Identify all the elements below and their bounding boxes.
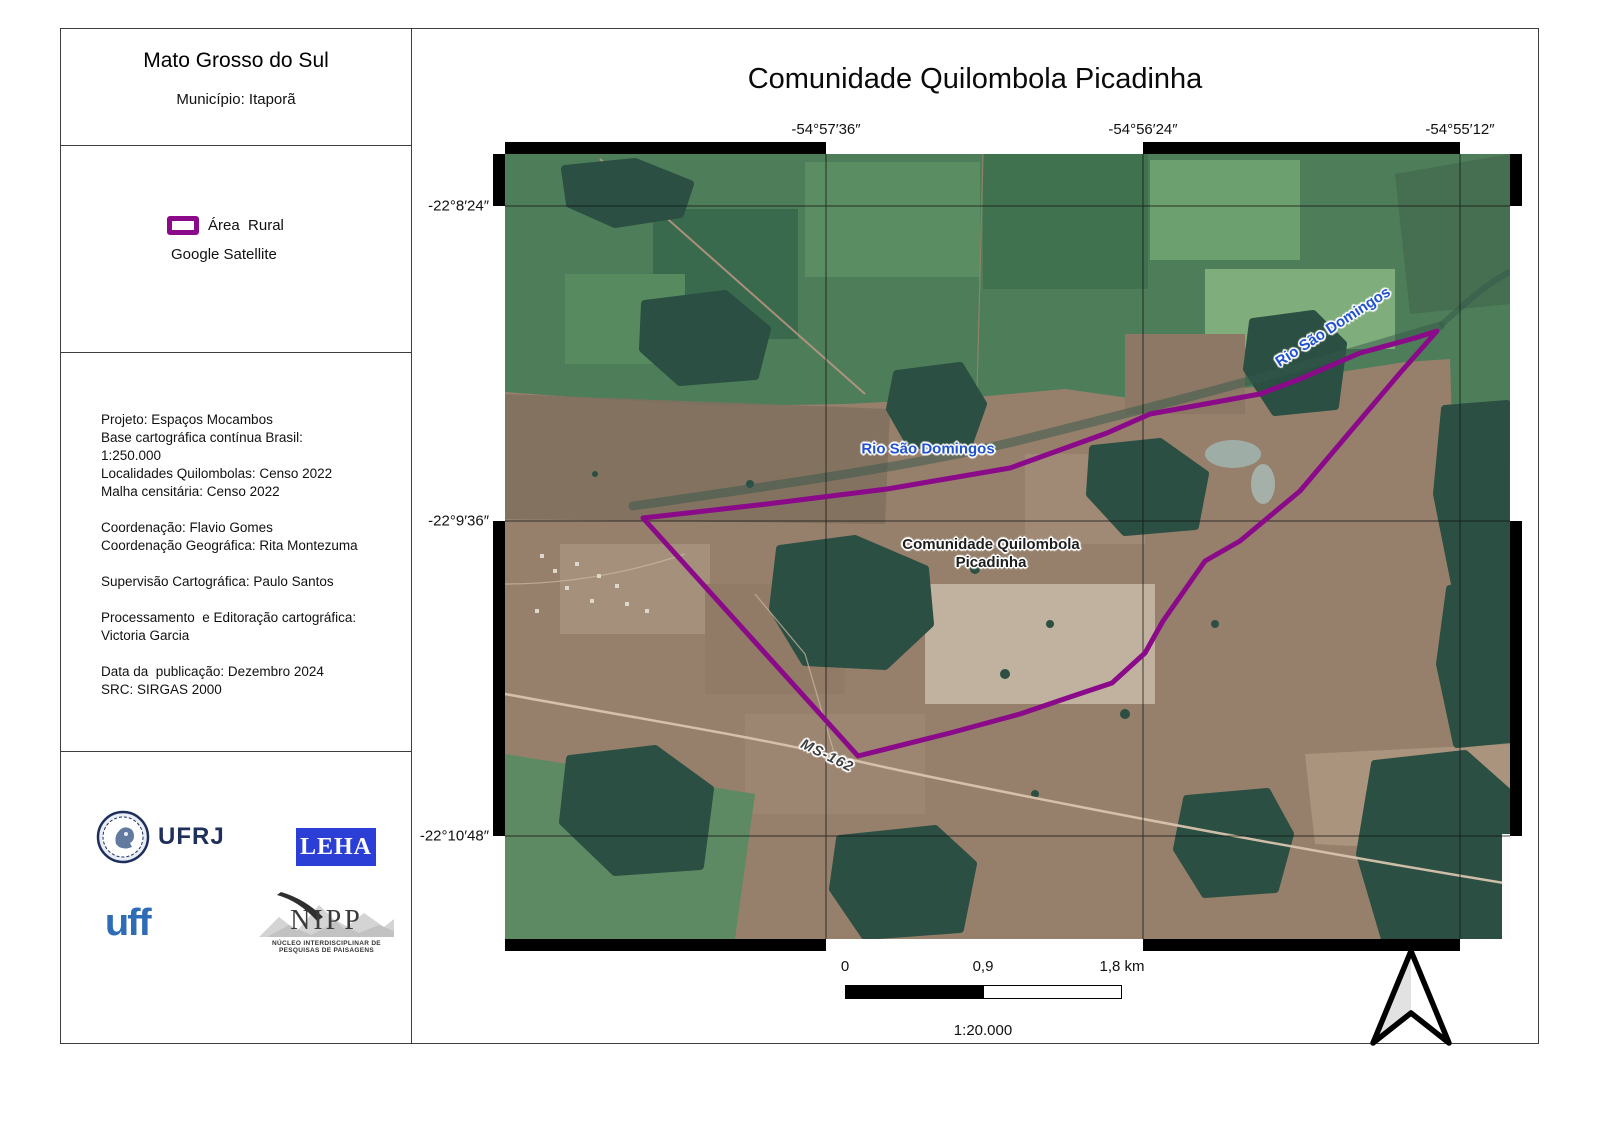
map-panel: Comunidade Quilombola Picadinha -54°57′3… [411, 28, 1539, 1044]
lat-grid-label: -22°9′36″ [428, 513, 489, 530]
nipp-logo-text: NIPP [259, 905, 394, 937]
sidebar: Mato Grosso do Sul Município: Itaporã Ár… [60, 28, 412, 1044]
scalebar-tick-0: 0 [841, 958, 849, 975]
credit-line [101, 591, 391, 609]
scalebar-tick-end: 1,8 km [1099, 958, 1144, 975]
map-layout-page: Mato Grosso do Sul Município: Itaporã Ár… [0, 0, 1600, 1131]
credit-line: Coordenação Geográfica: Rita Montezuma [101, 537, 391, 555]
ufrj-emblem-icon [96, 810, 150, 864]
municipality-label: Município: Itaporã [61, 91, 411, 108]
credit-line: Supervisão Cartográfica: Paulo Santos [101, 573, 391, 591]
scalebar-tick-mid: 0,9 [973, 958, 994, 975]
ufrj-logo: UFRJ [96, 810, 225, 864]
nipp-logo-subtitle: NÚCLEO INTERDISCIPLINAR DE PESQUISAS DE … [259, 940, 394, 954]
lon-grid-label: -54°56′24″ [1108, 121, 1177, 138]
legend-box: Área Rural Google Satellite [60, 145, 412, 353]
scalebar-filled-half [846, 986, 984, 998]
river-label-mid: Rio São Domingos [861, 441, 994, 458]
title-box: Mato Grosso do Sul Município: Itaporã [60, 28, 412, 146]
lon-grid-label: -54°55′12″ [1425, 121, 1494, 138]
leha-logo: LEHA [296, 828, 376, 866]
basemap-label: Google Satellite [171, 246, 411, 263]
credits-box: Projeto: Espaços Mocambos Base cartográf… [60, 352, 412, 752]
uff-logo-text: uff [105, 902, 150, 944]
leha-logo-text: LEHA [300, 834, 372, 861]
uff-logo: uff [105, 902, 150, 945]
north-arrow-icon [1365, 947, 1457, 1049]
legend-item-area-rural: Área Rural [167, 216, 411, 235]
ufrj-logo-text: UFRJ [158, 823, 225, 851]
community-label: Comunidade Quilombola Picadinha [902, 536, 1080, 572]
credit-line: 1:250.000 [101, 447, 391, 465]
credit-line: Projeto: Espaços Mocambos [101, 411, 391, 429]
area-rural-label: Área Rural [208, 217, 284, 234]
area-rural-swatch [167, 216, 199, 235]
credit-line: Malha censitária: Censo 2022 [101, 483, 391, 501]
credit-line: Localidades Quilombolas: Censo 2022 [101, 465, 391, 483]
lat-grid-label: -22°8′24″ [428, 198, 489, 215]
map-title: Comunidade Quilombola Picadinha [412, 63, 1538, 96]
credit-line: Processamento e Editoração cartográfica: [101, 609, 391, 627]
scale-ratio: 1:20.000 [954, 1022, 1012, 1039]
credit-line: Data da publicação: Dezembro 2024 [101, 663, 391, 681]
logos-box: UFRJ LEHA uff NIPP NÚCLEO INTERDISCIPLIN… [60, 751, 412, 1044]
credit-line: Coordenação: Flavio Gomes [101, 519, 391, 537]
scalebar [845, 985, 1122, 999]
credit-line [101, 645, 391, 663]
credit-line: Base cartográfica contínua Brasil: [101, 429, 391, 447]
credit-line [101, 501, 391, 519]
credit-line: SRC: SIRGAS 2000 [101, 681, 391, 699]
credit-line: Victoria Garcia [101, 627, 391, 645]
nipp-logo: NIPP NÚCLEO INTERDISCIPLINAR DE PESQUISA… [259, 887, 394, 954]
credit-line [101, 555, 391, 573]
lon-grid-label: -54°57′36″ [791, 121, 860, 138]
nipp-logo-art: NIPP [259, 887, 394, 939]
state-title: Mato Grosso do Sul [61, 49, 411, 73]
lat-grid-label: -22°10′48″ [420, 828, 489, 845]
